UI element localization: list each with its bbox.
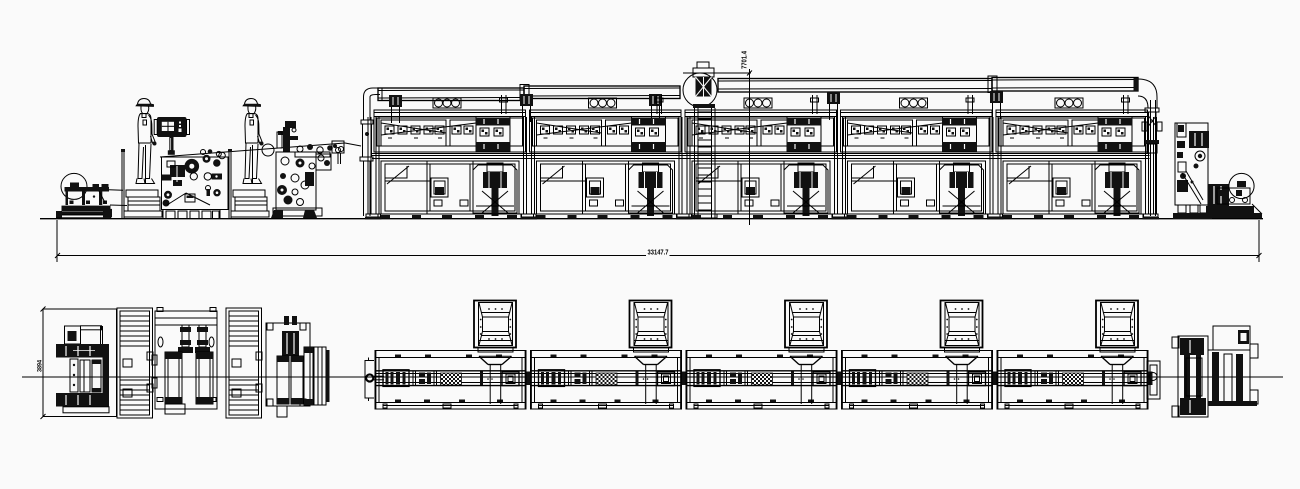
svg-text:7701.4: 7701.4 (742, 51, 749, 69)
svg-text:3894: 3894 (38, 359, 44, 372)
svg-text:33147.7: 33147.7 (648, 250, 669, 257)
